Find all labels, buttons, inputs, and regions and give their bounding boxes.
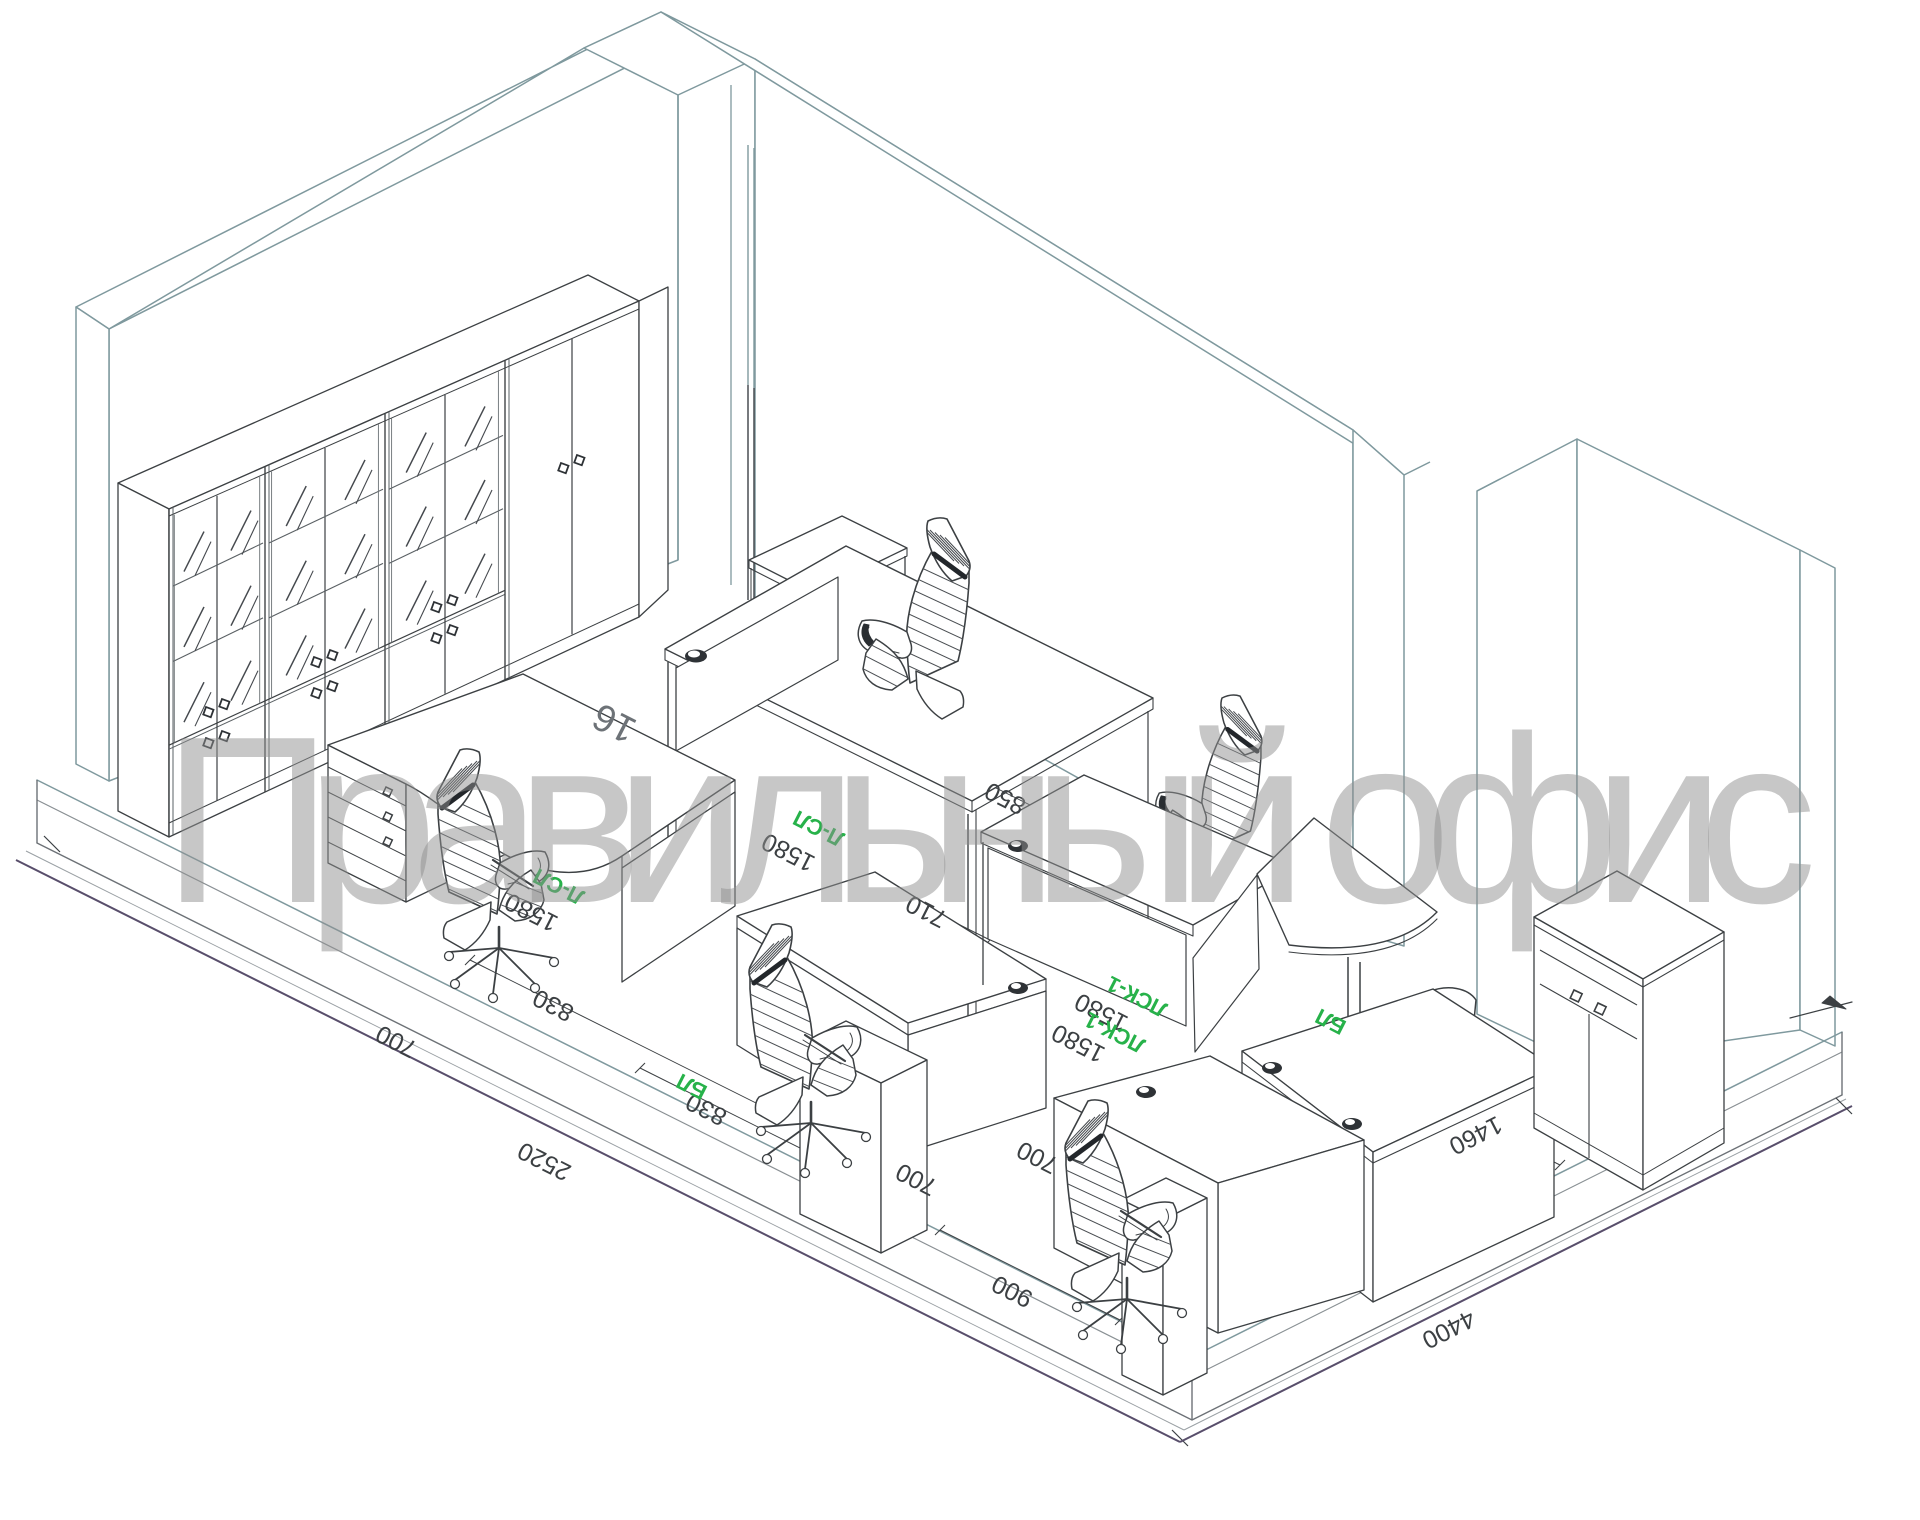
svg-text:Правильный офис: Правильный офис	[162, 688, 1817, 953]
